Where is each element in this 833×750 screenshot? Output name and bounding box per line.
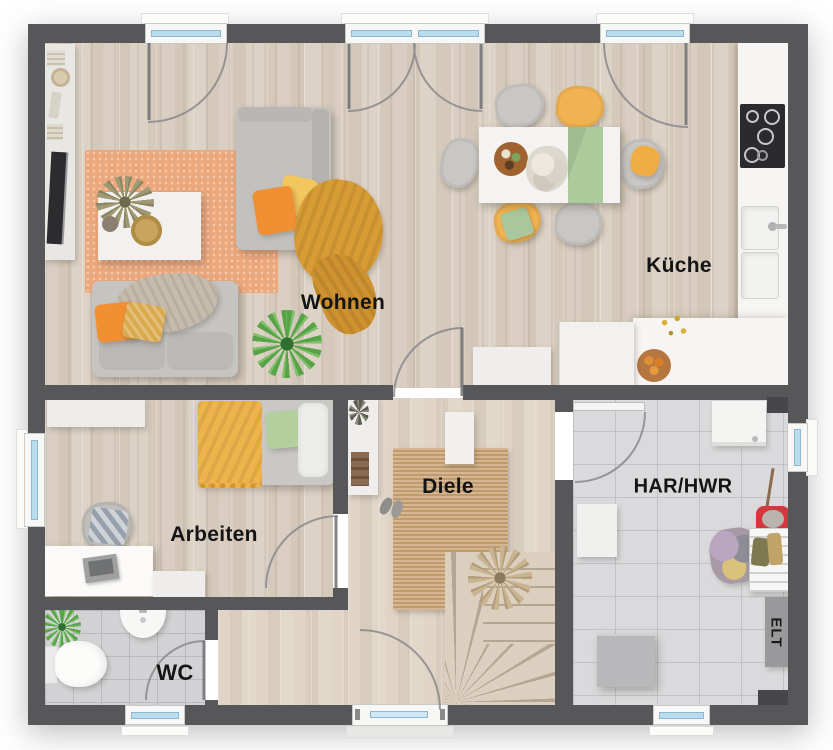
room-label-arbeiten: Arbeiten xyxy=(170,523,258,547)
wall-segment xyxy=(555,385,573,412)
elt-label: ELT xyxy=(768,617,785,647)
door-hinge xyxy=(440,709,445,720)
wall-segment xyxy=(28,24,45,433)
window-glass xyxy=(794,429,801,466)
table-runner xyxy=(568,127,603,203)
wall-segment xyxy=(205,610,218,640)
vase xyxy=(102,216,118,232)
washing-machine-knob xyxy=(752,436,758,442)
wall-segment xyxy=(463,385,788,400)
toilet xyxy=(55,641,107,687)
floor-plan: ELT xyxy=(0,0,833,750)
sofa-cushion xyxy=(167,332,233,370)
room-label-kueche: Küche xyxy=(646,254,712,278)
wall-segment xyxy=(28,705,125,725)
flower-stems xyxy=(652,310,694,352)
wall-segment xyxy=(28,24,145,43)
window-glass xyxy=(418,30,479,37)
pillow-orange xyxy=(252,185,299,236)
hall-closet xyxy=(445,412,474,464)
front-door-glass xyxy=(370,711,428,718)
burner xyxy=(746,110,759,123)
window-glass xyxy=(659,712,704,719)
basket xyxy=(51,68,70,87)
room-label-wc: WC xyxy=(156,660,193,686)
window-glass xyxy=(606,30,684,37)
room-label-wohnen: Wohnen xyxy=(301,291,385,315)
fridge-cabinet xyxy=(559,322,634,385)
wall-segment xyxy=(788,24,808,423)
wall-segment xyxy=(485,24,600,43)
book-stack xyxy=(47,124,63,140)
window-glass xyxy=(31,440,38,520)
wall-shelf xyxy=(47,397,145,427)
food-bowl xyxy=(494,142,528,176)
freezer-box xyxy=(597,634,655,687)
room-label-har-hwr: HAR/HWR xyxy=(634,476,733,499)
desk-return xyxy=(153,571,205,598)
burner xyxy=(764,109,780,125)
burner xyxy=(757,128,774,145)
elt-panel: ELT xyxy=(765,597,788,667)
dried-plant xyxy=(468,546,532,610)
faucet-handle xyxy=(775,224,787,229)
pillow-gold xyxy=(121,301,167,343)
wall-segment xyxy=(710,705,808,725)
palm-plant xyxy=(252,310,322,378)
kitchen-cabinet xyxy=(473,347,551,385)
window-glass xyxy=(151,30,221,37)
book-stack xyxy=(47,50,65,66)
wall-segment xyxy=(333,397,348,514)
duct-niche xyxy=(767,397,788,413)
sofa-chaise-arm xyxy=(238,107,312,122)
window-sill xyxy=(121,726,189,736)
window-glass xyxy=(131,712,179,719)
gold-tray xyxy=(131,215,162,246)
sideboard-books xyxy=(351,452,369,486)
wall-segment xyxy=(227,24,345,43)
pillow-white xyxy=(298,403,328,477)
wall-segment xyxy=(28,527,45,705)
floor-hallway-lower xyxy=(218,610,348,705)
blanket-yellow xyxy=(198,401,262,488)
wall-segment xyxy=(555,480,573,705)
door-hinge xyxy=(355,709,360,720)
wall-segment xyxy=(205,700,218,705)
wc-sink-drain xyxy=(140,617,146,623)
room-label-diele: Diele xyxy=(422,475,474,499)
wall-segment xyxy=(448,705,653,725)
window-sill xyxy=(649,726,714,736)
wall-segment xyxy=(28,597,348,610)
burner-inner xyxy=(757,150,768,161)
door-step xyxy=(346,726,454,738)
utility-cabinet xyxy=(577,504,617,557)
sink-basin xyxy=(741,252,779,299)
cushion-striped xyxy=(88,507,130,547)
duct-niche xyxy=(758,690,788,705)
sideboard-plant xyxy=(349,399,369,425)
laundry-in-basket xyxy=(762,510,784,528)
wall-segment xyxy=(185,705,352,725)
clothes-on-rack xyxy=(767,532,784,565)
window-glass xyxy=(351,30,412,37)
pillow-green xyxy=(264,410,301,450)
wall-segment xyxy=(788,472,808,705)
fruit-bowl xyxy=(637,349,671,382)
utility-door-leaf xyxy=(573,402,645,411)
